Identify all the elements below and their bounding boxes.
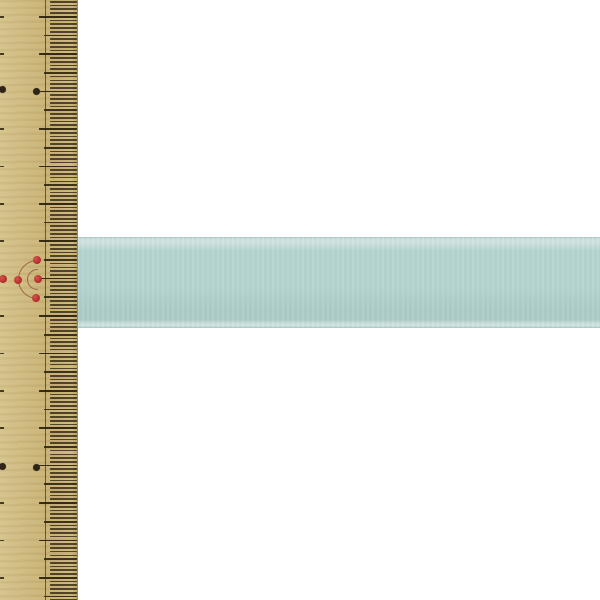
ruler-tick-fine — [50, 177, 77, 179]
ruler-tick-fine — [50, 12, 77, 14]
ruler-tick-major — [39, 166, 77, 168]
ruler-tick-fine — [50, 525, 77, 527]
red-center-dot — [14, 276, 22, 284]
ruler-tick-fine — [50, 382, 77, 384]
ruler-tick-fine — [50, 480, 77, 482]
ruler-tick-fine — [50, 562, 77, 564]
ruler-tick-fine — [50, 83, 77, 85]
ruler-tick-fine — [50, 181, 77, 183]
ruler-tick-fine — [50, 517, 77, 519]
ruler-tick-fine — [50, 394, 77, 396]
ruler-tick-fine — [50, 300, 77, 302]
ruler-tick-fine — [50, 8, 77, 10]
ruler-tick-fine — [50, 513, 77, 515]
ruler-tick-fine — [50, 139, 77, 141]
ruler-tick-fine — [50, 218, 77, 220]
ruler-tick-fine — [50, 106, 77, 108]
ruler-tick-major — [39, 540, 77, 542]
ruler-tick-fine — [50, 439, 77, 441]
ruler-tick-fine — [50, 23, 77, 25]
ruler-edge-stub — [0, 502, 4, 504]
ruler-edge-stub — [0, 390, 4, 392]
ruler-tick-fine — [50, 364, 77, 366]
ruler-tick-fine — [50, 229, 77, 231]
ruler-tick-major — [39, 502, 77, 504]
ruler-tick-fine — [50, 584, 77, 586]
red-center-dot — [0, 275, 7, 283]
ruler-tick-fine — [50, 68, 77, 70]
black-interval-dot — [33, 464, 40, 471]
ruler-tick-fine — [50, 495, 77, 497]
ruler-tick-fine — [50, 338, 77, 340]
ruler-tick-fine — [50, 566, 77, 568]
ruler-tick-fine — [50, 528, 77, 530]
ruler-tick-medium — [44, 72, 77, 74]
ruler-tick-medium — [44, 147, 77, 149]
ruler-tick-fine — [50, 50, 77, 52]
ruler-tick-fine — [50, 270, 77, 272]
ruler-tick-fine — [50, 341, 77, 343]
ruler-edge-stub — [0, 16, 4, 18]
ruler-tick-fine — [50, 5, 77, 7]
ruler-tick-fine — [50, 536, 77, 538]
ruler-tick-medium — [44, 259, 77, 261]
ruler-tick-fine — [50, 124, 77, 126]
ruler-tick-fine — [50, 461, 77, 463]
ruler-tick-fine — [50, 379, 77, 381]
ruler-tick-fine — [50, 304, 77, 306]
ruler-tick-fine — [50, 113, 77, 115]
ruler-edge-stub — [0, 315, 4, 317]
ruler-tick-fine — [50, 368, 77, 370]
ruler-tick-fine — [50, 20, 77, 22]
ruler-tick-fine — [50, 506, 77, 508]
ruler-tick-fine — [50, 248, 77, 250]
ruler-tick-fine — [50, 375, 77, 377]
ruler-tick-fine — [50, 319, 77, 321]
ruler-tick-fine — [50, 263, 77, 265]
ruler-tick-fine — [50, 543, 77, 545]
ruler-tick-fine — [50, 356, 77, 358]
red-center-dot — [32, 294, 40, 302]
ruler-tick-fine — [50, 154, 77, 156]
ruler-tick-fine — [50, 588, 77, 590]
ruler-tick-major — [39, 16, 77, 18]
ruler-tick-fine — [50, 323, 77, 325]
ruler-tick-fine — [50, 38, 77, 40]
ruler-tick-fine — [50, 431, 77, 433]
ruler-tick-medium — [44, 109, 77, 111]
ruler-tick-fine — [50, 192, 77, 194]
ruler-edge-stub — [0, 128, 4, 130]
ruler-tick-fine — [50, 102, 77, 104]
ruler-tick-fine — [50, 274, 77, 276]
ruler-tick-medium — [44, 483, 77, 485]
ruler-edge-stub — [0, 203, 4, 205]
ruler-tick-major — [39, 427, 77, 429]
ruler-tick-medium — [44, 558, 77, 560]
ruler-edge-stub — [0, 577, 4, 579]
ruler-tick-fine — [50, 132, 77, 134]
ruler-tick-fine — [50, 547, 77, 549]
ruler-tick-fine — [50, 412, 77, 414]
ruler-tick-fine — [50, 420, 77, 422]
ruler-tick-fine — [50, 397, 77, 399]
red-center-dot — [34, 275, 42, 283]
ruler-tick-fine — [50, 121, 77, 123]
ruler-tick-fine — [50, 386, 77, 388]
ruler-tick-fine — [50, 592, 77, 594]
ruler-tick-fine — [50, 225, 77, 227]
ruler-tick-fine — [50, 293, 77, 295]
ruler-tick-fine — [50, 252, 77, 254]
black-interval-dot — [0, 86, 6, 93]
black-interval-dot — [0, 463, 6, 470]
ruler-edge-stub — [0, 353, 4, 355]
ruler-tick-fine — [50, 57, 77, 59]
ruler-tick-major — [39, 577, 77, 579]
ruler-tick-fine — [50, 162, 77, 164]
ruler-tick-fine — [50, 401, 77, 403]
ruler-tick-fine — [50, 285, 77, 287]
ruler-tick-fine — [50, 498, 77, 500]
ruler-tick-fine — [50, 281, 77, 283]
ruler-tick-fine — [50, 476, 77, 478]
ruler-tick-fine — [50, 345, 77, 347]
ruler-tick-fine — [50, 326, 77, 328]
ruler-tick-medium — [44, 409, 77, 411]
product-photo — [0, 0, 600, 600]
ruler-tick-fine — [50, 487, 77, 489]
ruler-tick-fine — [50, 233, 77, 235]
ruler-tick-major — [39, 353, 77, 355]
ruler-tick-fine — [50, 151, 77, 153]
ruler-edge-stub — [0, 240, 4, 242]
ruler-tick-fine — [50, 158, 77, 160]
ruler-edge-stub — [0, 166, 4, 168]
ruler-tick-medium — [44, 521, 77, 523]
ruler-tick-fine — [50, 267, 77, 269]
black-interval-dot — [33, 88, 40, 95]
ruler-tick-major — [39, 128, 77, 130]
ruler-tick-fine — [50, 468, 77, 470]
ruler-tick-fine — [50, 416, 77, 418]
ribbon — [77, 237, 600, 328]
ruler-tick-fine — [50, 46, 77, 48]
ruler — [0, 0, 78, 600]
ruler-tick-medium — [44, 35, 77, 37]
ruler-tick-fine — [50, 435, 77, 437]
ruler-tick-fine — [50, 330, 77, 332]
ruler-tick-fine — [50, 532, 77, 534]
ruler-tick-medium — [44, 184, 77, 186]
ruler-tick-medium — [44, 596, 77, 598]
ruler-tick-fine — [50, 510, 77, 512]
ruler-tick-fine — [50, 31, 77, 33]
ruler-tick-fine — [50, 255, 77, 257]
ruler-tick-fine — [50, 551, 77, 553]
ruler-tick-major — [39, 53, 77, 55]
ruler-tick-medium — [44, 371, 77, 373]
ruler-tick-major — [39, 315, 77, 317]
ruler-tick-fine — [50, 237, 77, 239]
ruler-tick-fine — [50, 573, 77, 575]
ruler-tick-fine — [50, 199, 77, 201]
ruler-tick-medium — [44, 222, 77, 224]
ruler-tick-fine — [50, 42, 77, 44]
ruler-tick-fine — [50, 188, 77, 190]
ruler-tick-medium — [44, 334, 77, 336]
ruler-tick-medium — [44, 296, 77, 298]
ruler-edge-stub — [0, 427, 4, 429]
ruler-tick-fine — [50, 117, 77, 119]
ruler-tick-fine — [50, 98, 77, 100]
ruler-tick-fine — [50, 87, 77, 89]
ruler-tick-fine — [50, 214, 77, 216]
ruler-tick-fine — [50, 472, 77, 474]
ruler-tick-fine — [50, 1, 77, 3]
ruler-tick-fine — [50, 289, 77, 291]
ruler-tick-fine — [50, 491, 77, 493]
ruler-tick-fine — [50, 207, 77, 209]
ruler-tick-major — [39, 390, 77, 392]
ruler-tick-fine — [50, 210, 77, 212]
ruler-tick-fine — [50, 61, 77, 63]
ruler-edge-stub — [0, 540, 4, 542]
ruler-tick-fine — [50, 136, 77, 138]
ruler-tick-fine — [50, 405, 77, 407]
ruler-tick-fine — [50, 457, 77, 459]
ruler-tick-fine — [50, 349, 77, 351]
ruler-tick-fine — [50, 454, 77, 456]
ruler-tick-major — [39, 203, 77, 205]
ruler-tick-fine — [50, 244, 77, 246]
ruler-tick-fine — [50, 94, 77, 96]
red-center-dot — [33, 256, 41, 264]
ruler-edge-stub — [0, 53, 4, 55]
ruler-tick-fine — [50, 424, 77, 426]
ruler-tick-fine — [50, 143, 77, 145]
ruler-tick-fine — [50, 555, 77, 557]
ruler-tick-major — [39, 240, 77, 242]
ruler-tick-fine — [50, 581, 77, 583]
ruler-tick-fine — [50, 169, 77, 171]
ruler-tick-medium — [44, 446, 77, 448]
ruler-tick-fine — [50, 311, 77, 313]
ruler-tick-fine — [50, 442, 77, 444]
ruler-tick-fine — [50, 76, 77, 78]
ruler-tick-fine — [50, 360, 77, 362]
ruler-tick-fine — [50, 65, 77, 67]
ruler-tick-fine — [50, 27, 77, 29]
ruler-tick-fine — [50, 173, 77, 175]
ruler-tick-fine — [50, 308, 77, 310]
ruler-tick-fine — [50, 80, 77, 82]
ruler-tick-fine — [50, 569, 77, 571]
ruler-tick-fine — [50, 450, 77, 452]
ruler-tick-fine — [50, 195, 77, 197]
